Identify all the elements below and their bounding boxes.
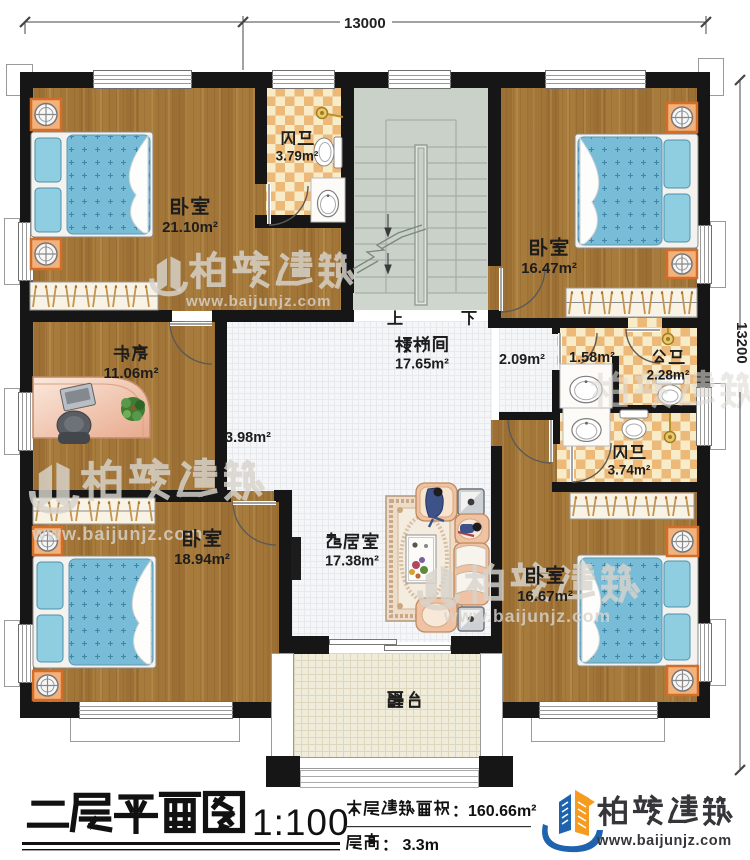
svg-text:3.79m²: 3.79m² [276, 149, 319, 164]
svg-text:： 3.3m: ： 3.3m [382, 837, 439, 854]
svg-text:3.98m²: 3.98m² [225, 430, 271, 446]
svg-text:www.baijunjz.com: www.baijunjz.com [443, 606, 611, 626]
svg-text:16.47m²: 16.47m² [521, 260, 577, 277]
svg-text:17.38m²: 17.38m² [325, 554, 379, 570]
svg-text:17.65m²: 17.65m² [395, 357, 449, 373]
svg-text:：160.66m²: ：160.66m² [452, 803, 537, 820]
svg-text:1.58m²: 1.58m² [569, 350, 615, 366]
svg-text:16.67m²: 16.67m² [517, 588, 573, 605]
svg-text:18.94m²: 18.94m² [174, 551, 230, 568]
svg-text:www.baijunjz.com: www.baijunjz.com [596, 833, 732, 849]
svg-text:2.28m²: 2.28m² [647, 368, 690, 383]
svg-text:11.06m²: 11.06m² [103, 365, 158, 382]
svg-text:13200: 13200 [733, 322, 750, 364]
svg-text:13000: 13000 [344, 15, 386, 32]
svg-text:2.09m²: 2.09m² [499, 352, 545, 368]
svg-text:www.baijunjz.com: www.baijunjz.com [185, 293, 331, 310]
svg-text:1:100: 1:100 [252, 802, 350, 843]
svg-text:www.baijunjz.com: www.baijunjz.com [31, 524, 203, 544]
svg-text:3.74m²: 3.74m² [608, 463, 651, 478]
svg-text:21.10m²: 21.10m² [162, 219, 218, 236]
